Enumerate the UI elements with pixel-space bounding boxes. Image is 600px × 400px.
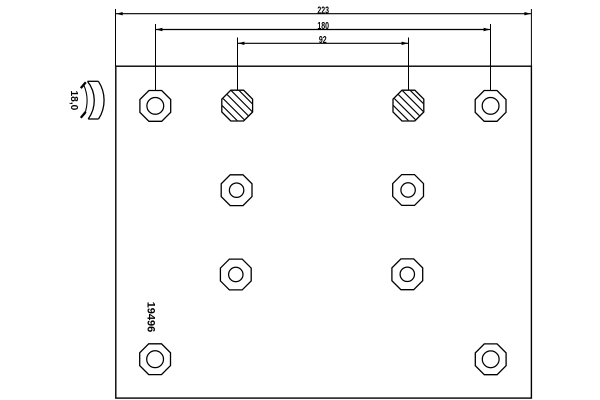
svg-text:92: 92	[319, 34, 327, 46]
svg-text:180: 180	[317, 20, 329, 32]
svg-text:18,0: 18,0	[68, 90, 79, 110]
svg-text:223: 223	[317, 4, 329, 16]
svg-text:19496: 19496	[145, 302, 157, 333]
